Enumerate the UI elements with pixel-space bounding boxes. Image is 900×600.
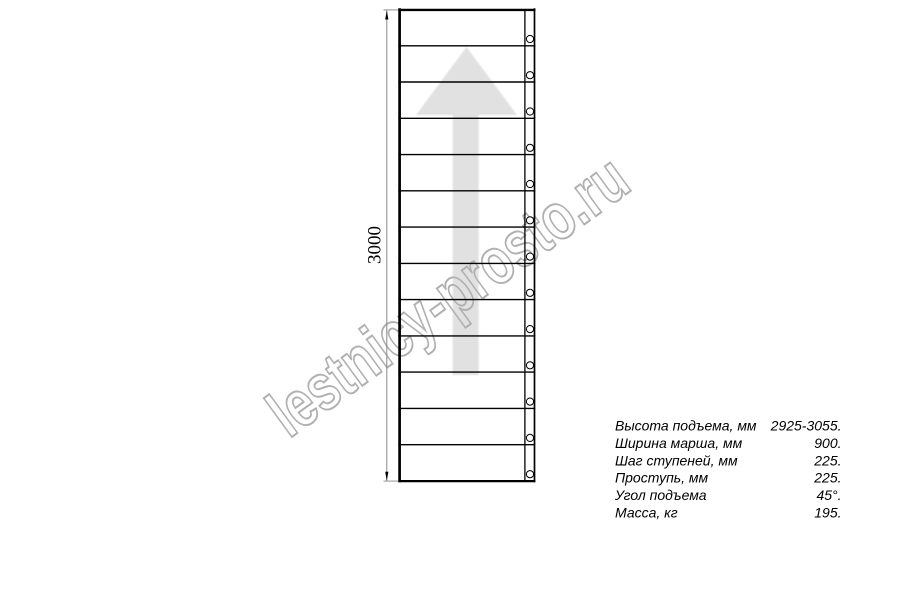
svg-text:225.: 225. [813, 470, 841, 486]
svg-text:Ширина марша, мм: Ширина марша, мм [615, 435, 743, 451]
svg-text:3000: 3000 [365, 226, 386, 264]
svg-text:45°.: 45°. [816, 487, 841, 503]
svg-text:900.: 900. [814, 435, 841, 451]
svg-text:Угол подъема: Угол подъема [614, 487, 707, 503]
svg-text:Высота подъема, мм: Высота подъема, мм [615, 418, 757, 434]
svg-text:Проступь, мм: Проступь, мм [615, 470, 709, 486]
svg-text:225.: 225. [813, 452, 841, 468]
svg-text:Шаг ступеней, мм: Шаг ступеней, мм [615, 452, 738, 468]
svg-text:2925-3055.: 2925-3055. [770, 418, 842, 434]
svg-text:Масса, кг: Масса, кг [615, 504, 678, 520]
svg-text:195.: 195. [814, 504, 841, 520]
